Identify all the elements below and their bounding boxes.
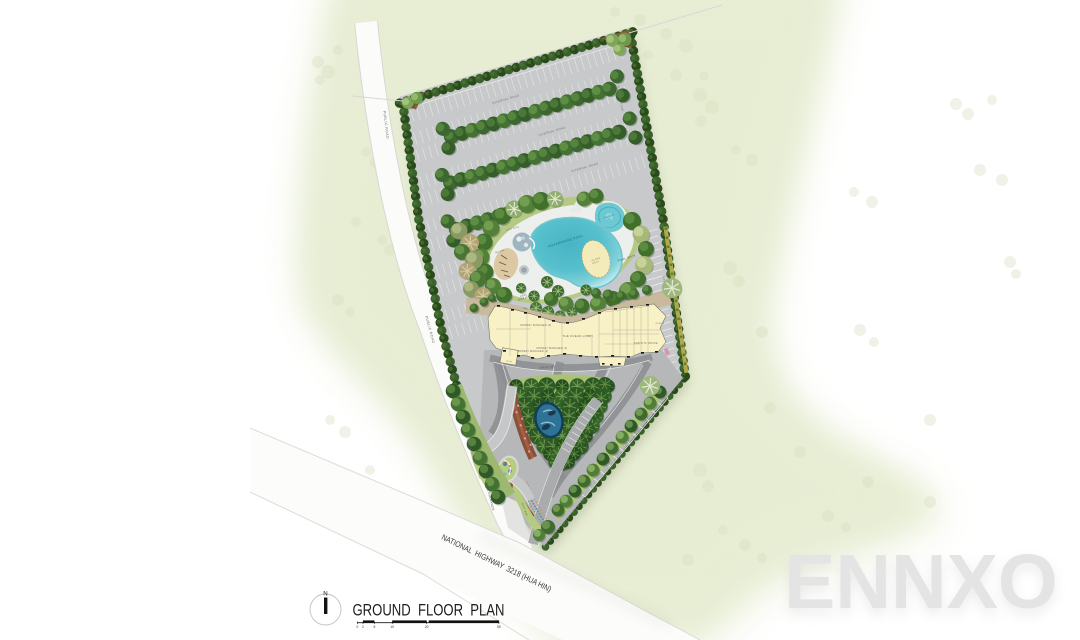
svg-text:10: 10 [390, 625, 394, 629]
svg-text:2: 2 [362, 625, 364, 629]
svg-text:ENNXO: ENNXO [784, 539, 1058, 625]
svg-text:OFFICE: OFFICE [656, 323, 665, 325]
svg-text:5: 5 [373, 625, 375, 629]
svg-text:20: 20 [425, 625, 429, 629]
svg-text:N: N [323, 591, 327, 598]
svg-text:GROUND FLOOR PLAN: GROUND FLOOR PLAN [353, 602, 505, 620]
svg-text:JURISTIC OFFICE: JURISTIC OFFICE [634, 343, 658, 345]
svg-text:0: 0 [356, 625, 358, 629]
svg-text:PLAY POND: PLAY POND [543, 445, 556, 448]
svg-text:MONKEY MANAGER (3): MONKEY MANAGER (3) [520, 324, 551, 327]
svg-text:MONKEY MANAGER (1): MONKEY MANAGER (1) [536, 347, 567, 350]
svg-text:50: 50 [497, 625, 501, 629]
svg-text:MONKEY MANAGER (2): MONKEY MANAGER (2) [517, 350, 548, 353]
svg-text:THE OCEAN LOBBY: THE OCEAN LOBBY [563, 334, 594, 338]
